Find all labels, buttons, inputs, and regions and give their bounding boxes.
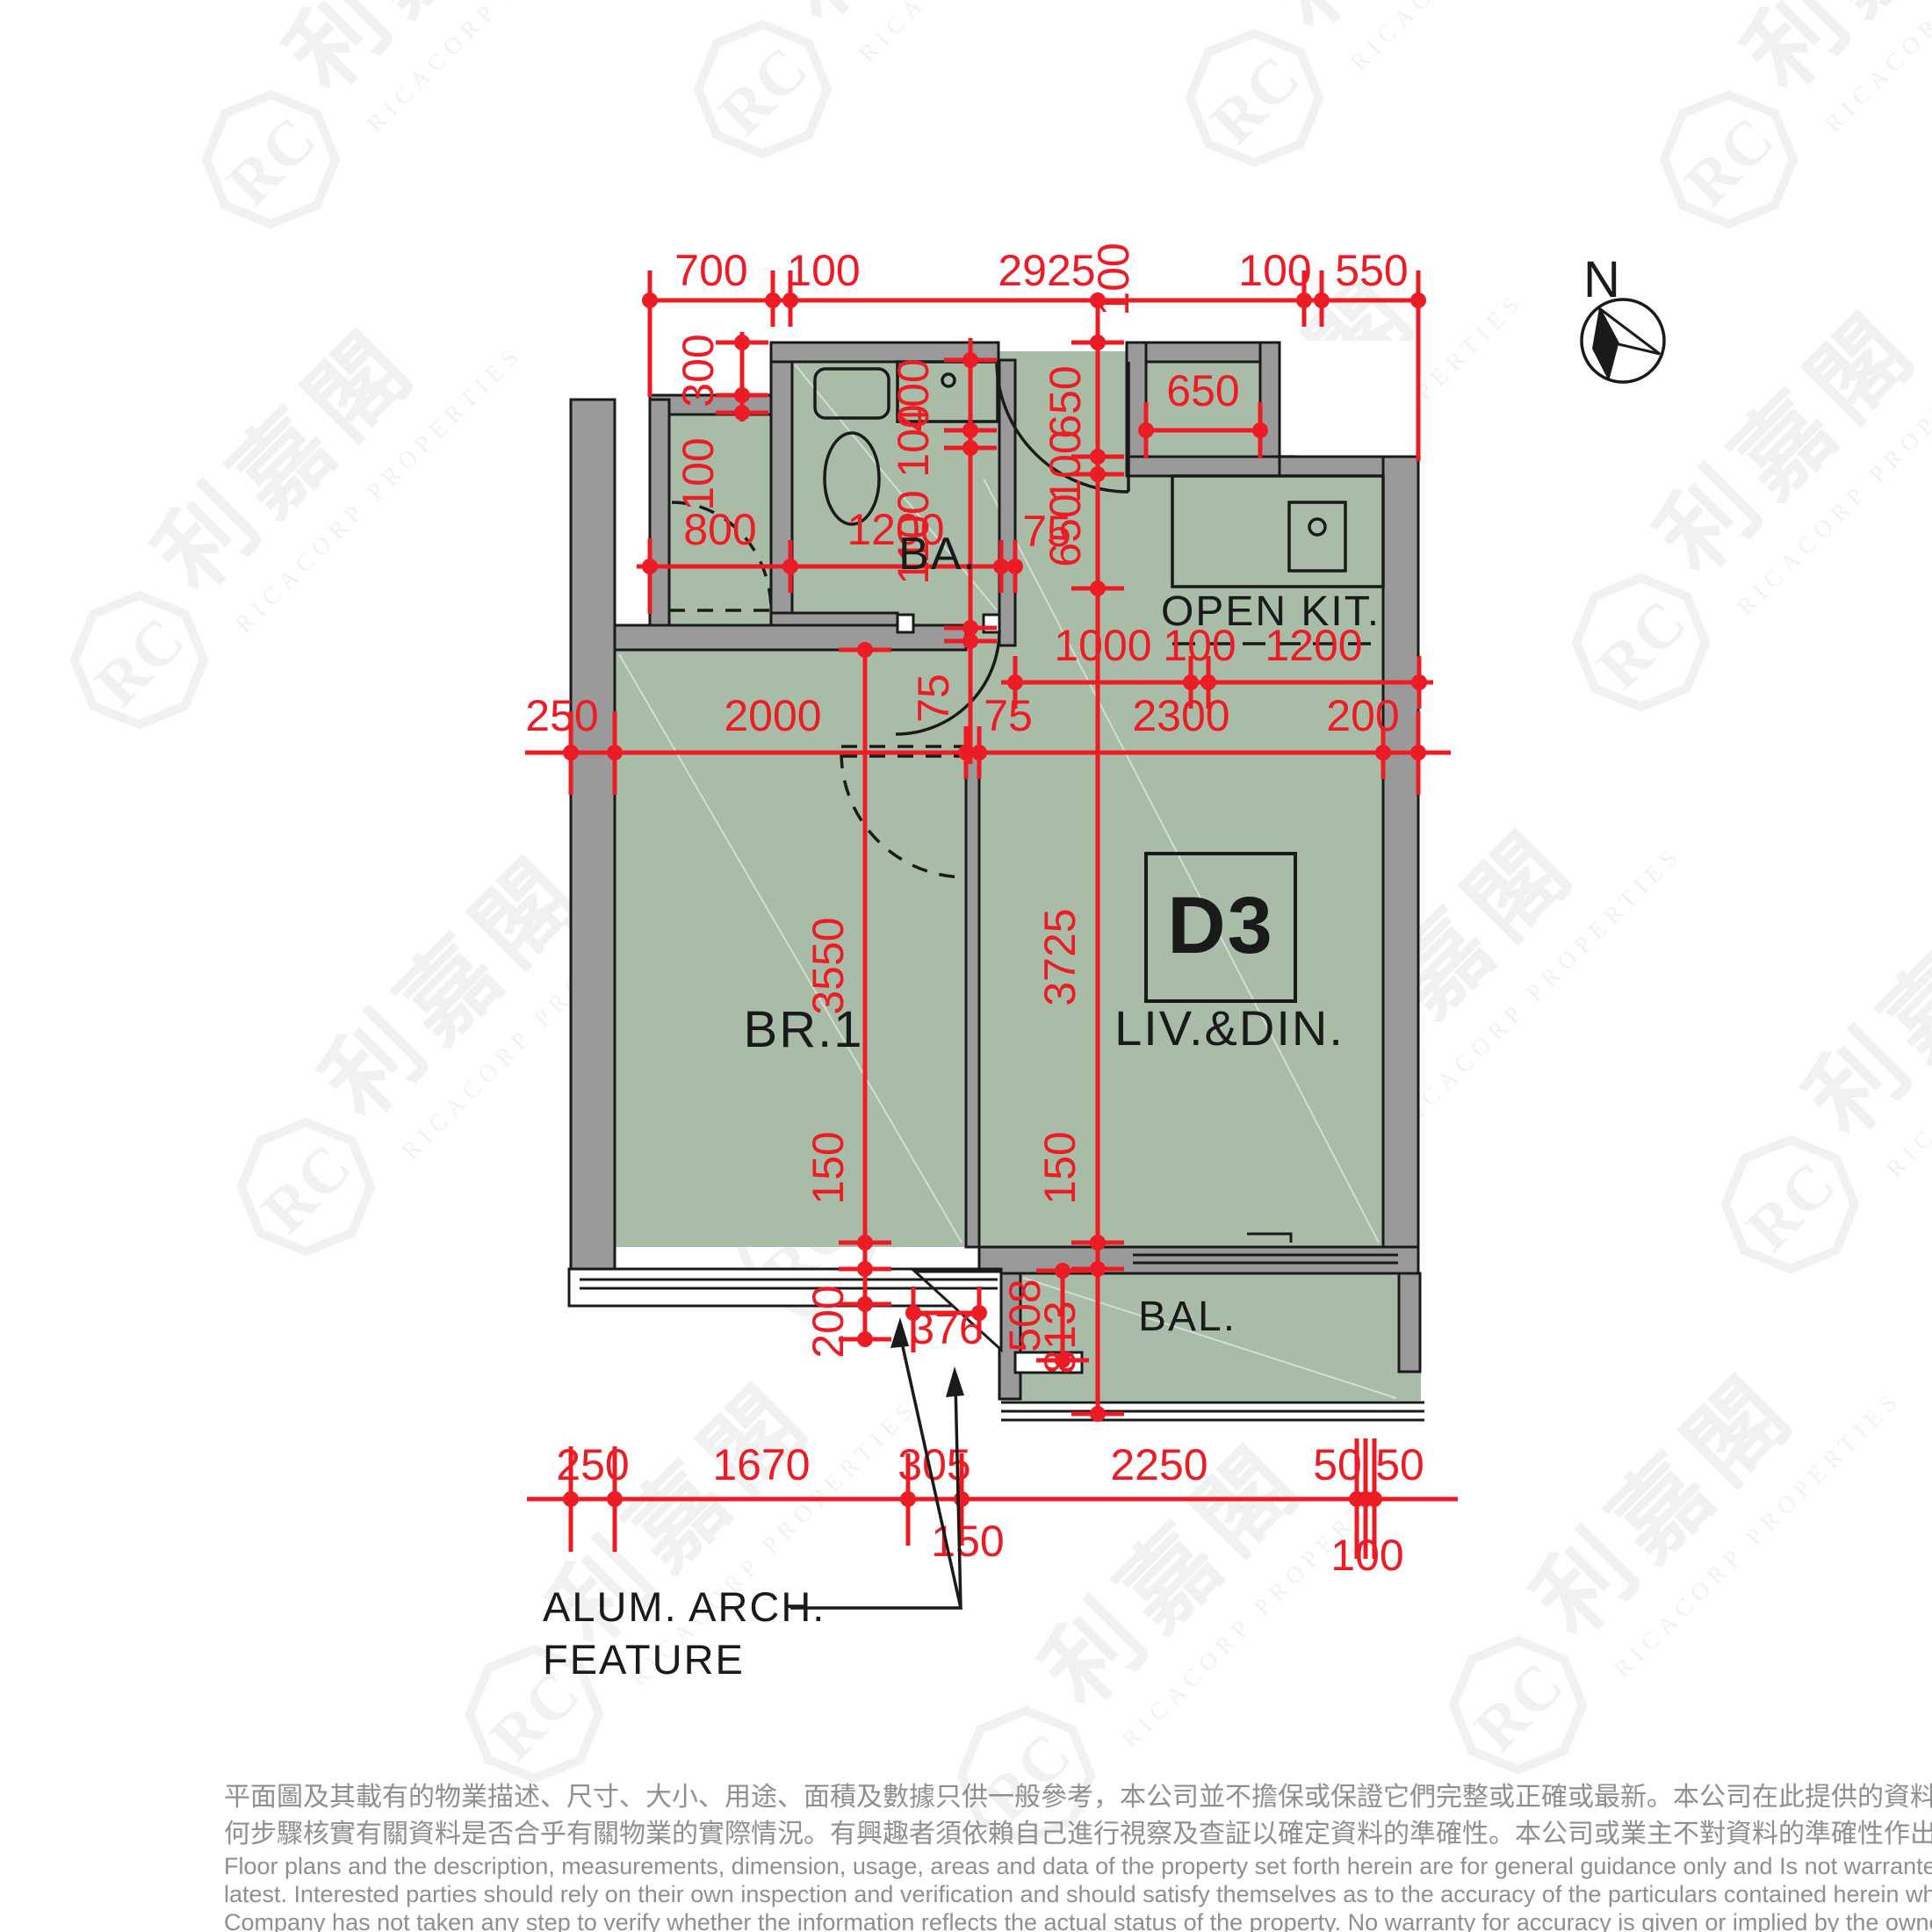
dim-kit-1000: 1000 [1054, 621, 1151, 670]
label-balcony: BAL. [1138, 1294, 1236, 1340]
dim-mid-2300: 2300 [1132, 691, 1229, 740]
wall-bath-right [999, 360, 1015, 645]
dim-br1-150: 150 [804, 1131, 853, 1204]
dim-top-2925: 2925 [998, 246, 1095, 295]
dim-entry-100: 100 [1041, 429, 1090, 502]
dim-bot-305: 305 [898, 1440, 970, 1489]
dim-bot-50b: 50 [1375, 1440, 1424, 1489]
dim-br1-3550: 3550 [804, 917, 853, 1014]
dim-mid-250: 250 [525, 691, 598, 740]
dim-top-550: 550 [1335, 246, 1408, 295]
wall-closet-left [650, 400, 669, 625]
dim-top-700: 700 [674, 246, 747, 295]
dim-bal-813: 813 [1035, 1301, 1085, 1373]
dim-bot-50a: 50 [1313, 1440, 1362, 1489]
dim-mid-200: 200 [1326, 691, 1399, 740]
dim-bath-100: 100 [889, 404, 938, 477]
balcony-railing [1001, 1402, 1424, 1420]
dim-liv-3725: 3725 [1035, 908, 1085, 1006]
dim-bot-2250: 2250 [1110, 1440, 1207, 1489]
annotation-alum-arch: ALUM. ARCH. [543, 1583, 825, 1630]
disclaimer: 平面圖及其載有的物業描述、尺寸、大小、用途、面積及數據只供一般參考，本公司並不擔… [224, 1783, 1932, 1932]
leader-arrowhead-1 [890, 1317, 909, 1348]
dim-closet-100: 100 [674, 437, 723, 510]
outside-mask-topright [1280, 341, 1422, 455]
dim-top-offset-100: 100 [1089, 242, 1138, 315]
floorplan-page: RC 利嘉閣 RICACORP PROPERTIES [0, 0, 1932, 1932]
dim-closet-800: 800 [683, 505, 756, 554]
dim-bot-100: 100 [1330, 1531, 1403, 1580]
bath-door-jamb-left [898, 615, 913, 632]
dim-bot-250: 250 [556, 1440, 629, 1489]
dim-mid-2000: 2000 [724, 691, 821, 740]
label-kitchen: OPEN KIT. [1161, 588, 1381, 635]
wall-left [571, 400, 615, 1271]
leader-arrowhead-2 [946, 1366, 964, 1397]
dim-store-650: 650 [1166, 366, 1239, 415]
disclaimer-en-line3: Company has not taken any step to verify… [224, 1909, 1932, 1932]
disclaimer-zh-line2: 何步驟核實有關資料是否合乎有關物業的實際情況。有興趣者須依賴自己進行視察及查証以… [224, 1820, 1932, 1849]
dim-top-100b: 100 [1238, 246, 1311, 295]
wall-store-top [1127, 342, 1280, 362]
dim-wall-75: 75 [909, 674, 958, 723]
dim-top-100a: 100 [787, 246, 860, 295]
dim-liv-150: 150 [1035, 1131, 1085, 1204]
dim-closet-300: 300 [674, 334, 723, 407]
disclaimer-zh-line1: 平面圖及其載有的物業描述、尺寸、大小、用途、面積及數據只供一般參考，本公司並不擔… [224, 1783, 1932, 1812]
disclaimer-en-line2: latest. Interested parties should rely o… [224, 1881, 1932, 1907]
wall-balcony-right [1399, 1273, 1420, 1372]
wall-partition [966, 753, 979, 1247]
dim-entry-650a: 650 [1041, 365, 1090, 438]
north-arrow: N [1582, 251, 1664, 382]
label-living: LIV.&DIN. [1114, 1000, 1344, 1056]
dim-notch-376: 376 [910, 1304, 983, 1353]
wall-store-bottom [1127, 457, 1280, 476]
dim-br1-200: 200 [804, 1285, 853, 1358]
label-bathroom: BA. [898, 529, 977, 580]
floorplan-canvas: RC 利嘉閣 RICACORP PROPERTIES [0, 0, 1932, 1932]
label-bedroom: BR.1 [744, 1001, 864, 1058]
disclaimer-en-line1: Floor plans and the description, measure… [224, 1853, 1932, 1879]
label-unit-flat: D3 [1167, 881, 1274, 970]
outside-mask-left-gap [615, 341, 650, 631]
wall-right [1383, 457, 1418, 1273]
dim-entry-650b: 650 [1041, 494, 1090, 566]
dim-bot-1670: 1670 [712, 1440, 810, 1489]
annotation-feature: FEATURE [543, 1636, 745, 1683]
dim-mid-75: 75 [984, 691, 1033, 740]
